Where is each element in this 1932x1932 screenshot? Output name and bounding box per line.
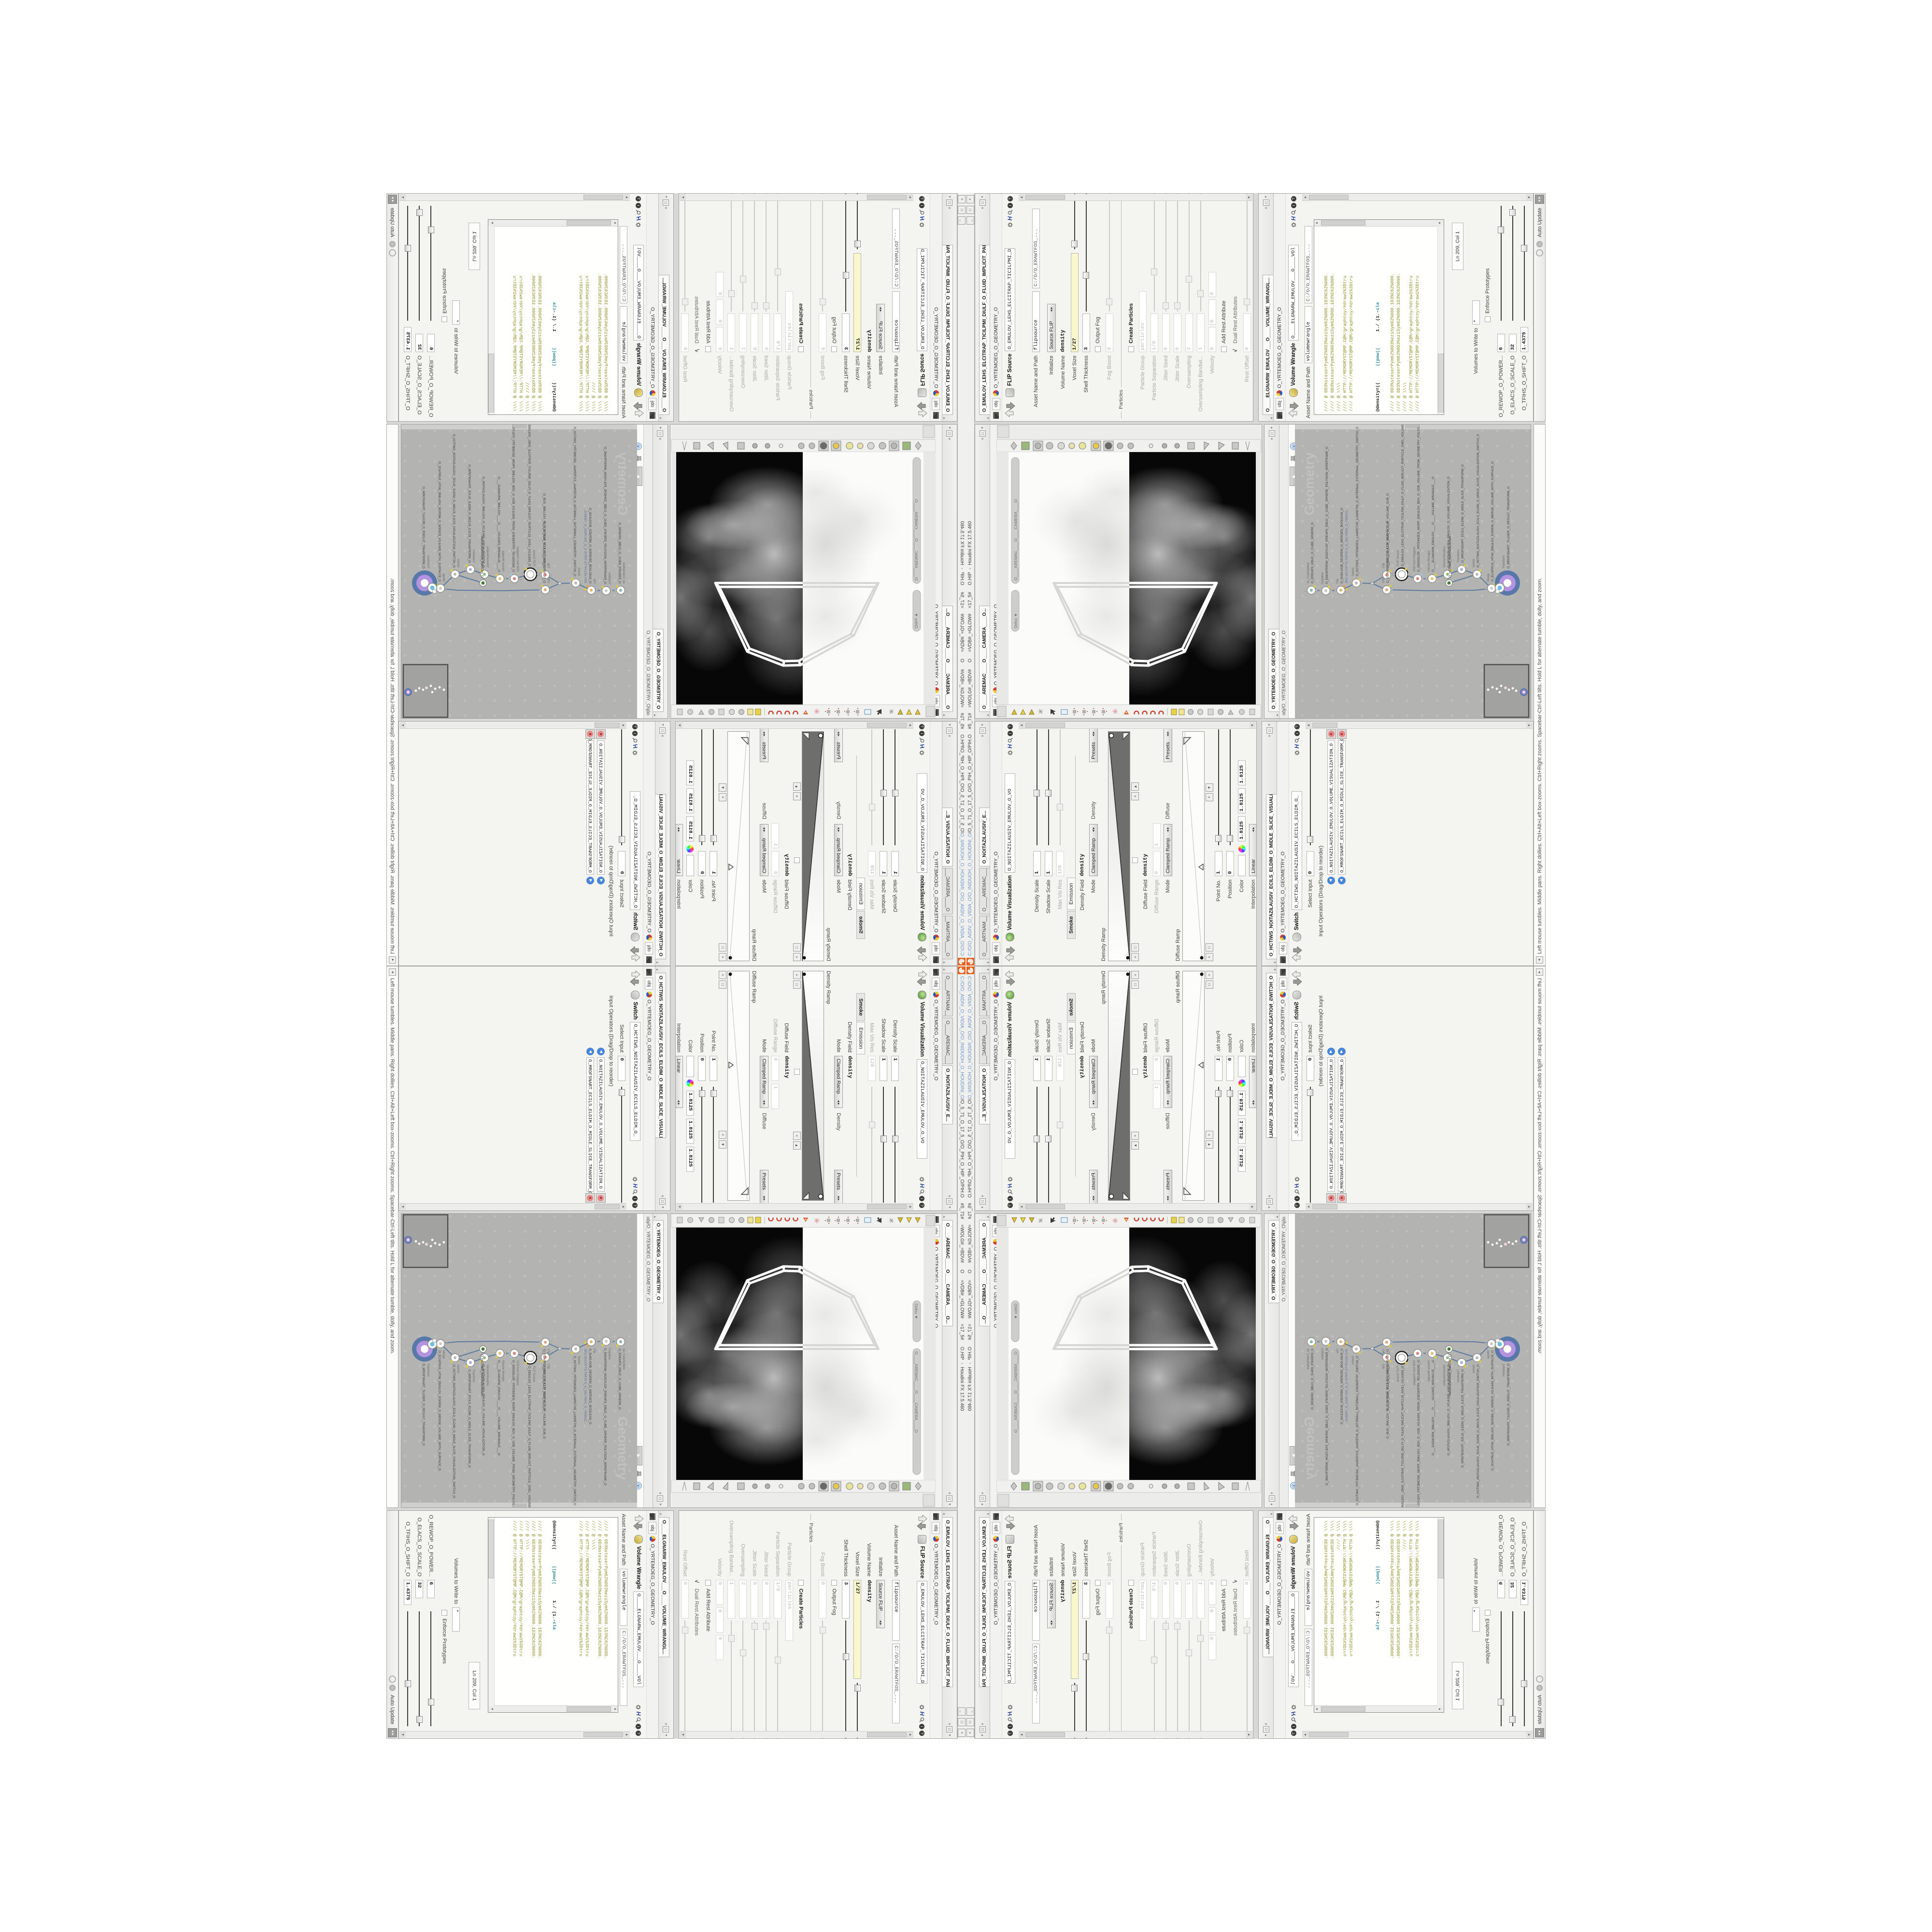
svg-text:VDB from Polygons: VDB from Polygons <box>1413 1360 1416 1385</box>
svg-text:Transform: Transform <box>472 1369 475 1382</box>
svg-text:Transform: Transform <box>426 1364 429 1377</box>
svg-text:JBO.VD3.PETS.TRFOLS_O_5SLVNDS_: JBO.VD3.PETS.TRFOLS_O_5SLVNDS_O_GEMUS... <box>1345 1349 1349 1424</box>
svg-text:O_HCTIWS_YRTEMOEG_LANRETXE_LAN: O_HCTIWS_YRTEMOEG_LANRETXE_LANRETNI_O_IN… <box>573 1356 576 1506</box>
svg-text:PolyWire: PolyWire <box>1321 572 1324 584</box>
svg-text:Merge: Merge <box>442 573 445 582</box>
svg-text:O_HCTIWS_YRTEMOEG_LANRETXE_LAN: O_HCTIWS_YRTEMOEG_LANRETXE_LANRETNI_O_IN… <box>573 426 576 576</box>
svg-text:Clip: Clip <box>547 1364 550 1369</box>
svg-text:O_ECAFRUS_HTIW_EMULOV_EGREM_O_: O_ECAFRUS_HTIW_EMULOV_EGREM_O_MERGE_VOLU… <box>438 1350 441 1471</box>
svg-text:O____ELGNARW_EMULOV____O____VO: O____ELGNARW_EMULOV____O____VOLUME_WRANG… <box>497 1360 500 1455</box>
svg-text:JBO.VD3.PETS.TRFOLS_O_5SLVNDS_: JBO.VD3.PETS.TRFOLS_O_5SLVNDS_O_GEMUS... <box>583 1349 587 1424</box>
svg-text:ae_CubeSphere: ae_CubeSphere <box>622 562 625 583</box>
svg-text:VolumeVisualiza: VolumeVisualiza <box>486 1364 489 1386</box>
svg-text:Merge: Merge <box>1487 573 1490 582</box>
svg-text:File: File <box>1336 579 1339 583</box>
svg-text:O_NAELOOB_DEGREM_O_MERGED_BOOL: O_NAELOOB_DEGREM_O_MERGED_BOOLEAN_O <box>1340 508 1344 583</box>
svg-text:Volume Wrangle: Volume Wrangle <box>501 550 504 572</box>
svg-text:File: File <box>593 1349 596 1353</box>
svg-text:ae_CubeSphere: ae_CubeSphere <box>1307 1349 1310 1370</box>
svg-text:Switch: Switch <box>1473 1364 1476 1373</box>
svg-text:VolumeVisualiza: VolumeVisualiza <box>1443 1364 1446 1386</box>
svg-text:FLIP Source: FLIP Source <box>1397 1366 1400 1382</box>
svg-text:O_NAELOOB_DEGREM_O_MERGED_BOOL: O_NAELOOB_DEGREM_O_MERGED_BOOLEAN_O <box>1340 1349 1344 1424</box>
svg-text:Switch: Switch <box>1352 1356 1355 1364</box>
svg-text:O_EMULOV_LEHS_ELCITRAP_TICILPM: O_EMULOV_LEHS_ELCITRAP_TICILPMI_DIULF_O_… <box>1401 1366 1405 1508</box>
svg-text:O_EREHPS_EBUC_O_CUBE_SPHERE_O: O_EREHPS_EBUC_O_CUBE_SPHERE_O <box>618 1349 621 1409</box>
svg-text:Clip: Clip <box>547 578 550 583</box>
svg-text:Transform: Transform <box>426 555 429 568</box>
svg-text:O_EMARFERIW_NOGYLOP_EREHPS_EBU: O_EMARFERIW_NOGYLOP_EREHPS_EBUC_O_CUBE_S… <box>603 447 607 584</box>
svg-text:VDB from Polygons: VDB from Polygons <box>1413 547 1416 572</box>
svg-text:O_MROFSNART_ECILS_ELDIM_O_MIDL: O_MROFSNART_ECILS_ELDIM_O_MIDLE_SLICE_TR… <box>1461 464 1464 563</box>
svg-text:Geometry: Geometry <box>615 1417 630 1480</box>
svg-text:Geometry: Geometry <box>615 452 630 515</box>
svg-text:O_HCTIWS_NOITAZILAUSIV_ECILS_E: O_HCTIWS_NOITAZILAUSIV_ECILS_ELDIM_O_MID… <box>452 434 455 568</box>
svg-text:O_EMARFERIW_NOGYLOP_EREHPS_EBU: O_EMARFERIW_NOGYLOP_EREHPS_EBUC_O_CUBE_S… <box>1325 1348 1329 1485</box>
svg-text:O_EREHPS_EBUC_O_CUBE_SPHERE_O: O_EREHPS_EBUC_O_CUBE_SPHERE_O <box>1311 1349 1314 1409</box>
svg-text:O_HCTIWS_YRTEMOEG_LANRETXE_LAN: O_HCTIWS_YRTEMOEG_LANRETXE_LANRETNI_O_IN… <box>1356 1356 1359 1506</box>
svg-text:VolumeVisualiza: VolumeVisualiza <box>1443 546 1446 568</box>
svg-text:VolumeVisualiza: VolumeVisualiza <box>486 546 489 568</box>
svg-text:O____AREMAC____O____CAMERA____: O____AREMAC____O____CAMERA____O <box>914 499 919 581</box>
svg-text:O_EMARFERIW_NOGYLOP_EREHPS_EBU: O_EMARFERIW_NOGYLOP_EREHPS_EBUC_O_CUBE_S… <box>1325 447 1329 584</box>
svg-text:O_HCTIWS_NOITAZILAUSIV...: O_HCTIWS_NOITAZILAUSIV... <box>480 1354 483 1398</box>
svg-text:O_MROFSNART_TLUSER_O_RESULT_TR: O_MROFSNART_TLUSER_O_RESULT_TRANSFORM_O <box>422 1364 425 1446</box>
svg-text:FLIP Source: FLIP Source <box>1397 550 1400 566</box>
svg-text:Ortho ▼: Ortho ▼ <box>914 613 919 628</box>
svg-text:Clip: Clip <box>1382 1364 1385 1369</box>
svg-text:Clip: Clip <box>547 563 550 568</box>
svg-text:O_EREHPS_EBUC_O_CUBE_SPHERE_O: O_EREHPS_EBUC_O_CUBE_SPHERE_O <box>1311 523 1314 583</box>
svg-text:Switch: Switch <box>1473 559 1476 568</box>
svg-text:O_MROFSNART_ECILS_ELDIM_O_MIDL: O_MROFSNART_ECILS_ELDIM_O_MIDLE_SLICE_TR… <box>468 1369 471 1468</box>
svg-text:O_HCTIWS_NOITAZILAUSIV_ECILS_E: O_HCTIWS_NOITAZILAUSIV_ECILS_ELDIM_O_MID… <box>1477 1364 1480 1498</box>
svg-text:O_EMARFERIW_NOGYLOP_EREHPS_EBU: O_EMARFERIW_NOGYLOP_EREHPS_EBUC_O_CUBE_S… <box>603 1348 607 1485</box>
svg-text:Volume Wrangle: Volume Wrangle <box>501 1360 504 1382</box>
svg-text:O____AREMAC____O____CAMERA____: O____AREMAC____O____CAMERA____O <box>914 1351 919 1433</box>
svg-text:Merge: Merge <box>442 1350 445 1359</box>
svg-text:PolyWire: PolyWire <box>1321 1348 1324 1360</box>
svg-text:Ortho ▼: Ortho ▼ <box>914 1304 919 1319</box>
svg-text:O_EMULOV_LEHS_ELCITRAP_TICILPM: O_EMULOV_LEHS_ELCITRAP_TICILPMI_DIULF_O_… <box>1401 424 1405 566</box>
svg-text:Clip: Clip <box>547 1349 550 1354</box>
svg-text:File: File <box>1336 1349 1339 1353</box>
svg-text:Clip: Clip <box>1382 563 1385 568</box>
svg-text:O_ECAFRUS_PILC_O_CLIP_SURFACE_: O_ECAFRUS_PILC_O_CLIP_SURFACE_O <box>542 521 546 583</box>
svg-text:O_HCTIWS_NOITAZILAUSIV...: O_HCTIWS_NOITAZILAUSIV... <box>480 534 483 578</box>
svg-text:Transform: Transform <box>1457 1369 1460 1382</box>
svg-text:Ortho ▼: Ortho ▼ <box>1013 1304 1018 1319</box>
svg-text:O_MROFSNART_TLUSER_O_RESULT_TR: O_MROFSNART_TLUSER_O_RESULT_TRANSFORM_O <box>1507 486 1510 568</box>
svg-text:O_MROFSNART_TLUSER_O_RESULT_TR: O_MROFSNART_TLUSER_O_RESULT_TRANSFORM_O <box>422 486 425 568</box>
svg-text:O_NAELOOB_DEGREM_O_MERGED_BOOL: O_NAELOOB_DEGREM_O_MERGED_BOOLEAN_O <box>588 508 592 583</box>
svg-text:O____ELGNARW_EMULOV____O____VO: O____ELGNARW_EMULOV____O____VOLUME_WRANG… <box>1432 477 1435 572</box>
svg-text:O_ECAFRUS_PILC_O_CLIP_SURFACE_: O_ECAFRUS_PILC_O_CLIP_SURFACE_O <box>1386 521 1390 583</box>
svg-text:O_HCTIWS_NOITAZILAUSIV_ECILS_E: O_HCTIWS_NOITAZILAUSIV_ECILS_ELDIM_O_MID… <box>452 1364 455 1498</box>
svg-text:O____AREMAC____O____CAMERA____: O____AREMAC____O____CAMERA____O <box>1013 499 1018 581</box>
svg-text:O_HCTIWS_YRTEMOEG_LANRETXE_LAN: O_HCTIWS_YRTEMOEG_LANRETXE_LANRETNI_O_IN… <box>1356 426 1359 576</box>
svg-text:O_MROFSNART_ECILS_ELDIM_O_MIDL: O_MROFSNART_ECILS_ELDIM_O_MIDLE_SLICE_TR… <box>1461 1369 1464 1468</box>
svg-text:ae_CubeSphere: ae_CubeSphere <box>622 1349 625 1370</box>
svg-text:Transform: Transform <box>1503 1364 1506 1377</box>
svg-text:O_EREHPS_EBUC_O_CUBE_SPHERE_O: O_EREHPS_EBUC_O_CUBE_SPHERE_O <box>618 523 621 583</box>
svg-text:O_ECAFRUS_PILC_O_CLIP_SURFACE_: O_ECAFRUS_PILC_O_CLIP_SURFACE_O <box>1386 1349 1390 1411</box>
svg-text:Transform: Transform <box>1503 555 1506 568</box>
svg-text:Geometry: Geometry <box>1302 1417 1317 1480</box>
svg-text:JBO.VD3.PETS.TRFOLS_O_5SLVNDS_: JBO.VD3.PETS.TRFOLS_O_5SLVNDS_O_GEMUS... <box>583 508 587 583</box>
svg-text:O_EMULOV_LEHS_ELCITRAP_TICILPM: O_EMULOV_LEHS_ELCITRAP_TICILPMI_DIULF_O_… <box>527 1366 531 1508</box>
svg-text:VDB from Polygons: VDB from Polygons <box>516 1360 519 1385</box>
svg-text:Transform: Transform <box>472 550 475 563</box>
svg-text:O_HCTIWS_NOITAZILAUSIV...: O_HCTIWS_NOITAZILAUSIV... <box>1449 534 1452 578</box>
svg-text:O_SNOGILOP_YRTEMOEG_MORF_EMULO: O_SNOGILOP_YRTEMOEG_MORF_EMULOV_BDV_O_VD… <box>1417 1360 1421 1507</box>
svg-text:O_ECAFRUS_HTIW_EMULOV_EGREM_O_: O_ECAFRUS_HTIW_EMULOV_EGREM_O_MERGE_VOLU… <box>1491 461 1494 582</box>
svg-text:Clip: Clip <box>1382 578 1385 583</box>
svg-text:Switch: Switch <box>456 1364 459 1373</box>
svg-text:O_EMULOV_LEHS_ELCITRAP_TICILPM: O_EMULOV_LEHS_ELCITRAP_TICILPMI_DIULF_O_… <box>527 424 531 566</box>
svg-text:Volume Wrangle: Volume Wrangle <box>1428 550 1431 572</box>
svg-text:Switch: Switch <box>577 568 580 576</box>
svg-text:VDB from Polygons: VDB from Polygons <box>516 547 519 572</box>
svg-text:O_HCTIWS_NOITAZILAUSIV_ECILS_E: O_HCTIWS_NOITAZILAUSIV_ECILS_ELDIM_O_MID… <box>1477 434 1480 568</box>
svg-text:O_SNOGILOP_YRTEMOEG_MORF_EMULO: O_SNOGILOP_YRTEMOEG_MORF_EMULOV_BDV_O_VD… <box>511 1360 515 1507</box>
svg-text:O_HCTIWS_NOITAZILAUSIV...: O_HCTIWS_NOITAZILAUSIV... <box>1449 1354 1452 1398</box>
svg-text:O_MROFSNART_ECILS_ELDIM_O_MIDL: O_MROFSNART_ECILS_ELDIM_O_MIDLE_SLICE_TR… <box>468 464 471 563</box>
svg-text:O_NAELOOB_DEGREM_O_MERGED_BOOL: O_NAELOOB_DEGREM_O_MERGED_BOOLEAN_O <box>588 1349 592 1424</box>
svg-text:Clip: Clip <box>1382 1349 1385 1354</box>
svg-text:Switch: Switch <box>577 1356 580 1364</box>
svg-text:Geometry: Geometry <box>1302 452 1317 515</box>
svg-text:FLIP Source: FLIP Source <box>532 1366 535 1382</box>
svg-text:O____ELGNARW_EMULOV____O____VO: O____ELGNARW_EMULOV____O____VOLUME_WRANG… <box>497 477 500 572</box>
svg-text:O_ECAFRUS_HTIW_EMULOV_EGREM_O_: O_ECAFRUS_HTIW_EMULOV_EGREM_O_MERGE_VOLU… <box>438 461 441 582</box>
svg-text:O_SNOGILOP_YRTEMOEG_MORF_EMULO: O_SNOGILOP_YRTEMOEG_MORF_EMULOV_BDV_O_VD… <box>511 425 515 572</box>
svg-text:O_MROFSNART_TLUSER_O_RESULT_TR: O_MROFSNART_TLUSER_O_RESULT_TRANSFORM_O <box>1507 1364 1510 1446</box>
svg-text:Switch: Switch <box>1352 568 1355 576</box>
svg-text:Switch: Switch <box>456 559 459 568</box>
svg-text:O_ECAFRUS_HTIW_EMULOV_EGREM_O_: O_ECAFRUS_HTIW_EMULOV_EGREM_O_MERGE_VOLU… <box>1491 1350 1494 1471</box>
svg-text:O_SNOGILOP_YRTEMOEG_MORF_EMULO: O_SNOGILOP_YRTEMOEG_MORF_EMULOV_BDV_O_VD… <box>1417 425 1421 572</box>
svg-text:Volume Wrangle: Volume Wrangle <box>1428 1360 1431 1382</box>
svg-text:Merge: Merge <box>1487 1350 1490 1359</box>
svg-text:O____AREMAC____O____CAMERA____: O____AREMAC____O____CAMERA____O <box>1013 1351 1018 1433</box>
svg-text:PolyWire: PolyWire <box>608 1348 611 1360</box>
svg-text:Transform: Transform <box>1457 550 1460 563</box>
svg-text:O____ELGNARW_EMULOV____O____VO: O____ELGNARW_EMULOV____O____VOLUME_WRANG… <box>1432 1360 1435 1455</box>
svg-text:PolyWire: PolyWire <box>608 572 611 584</box>
svg-text:ae_CubeSphere: ae_CubeSphere <box>1307 562 1310 583</box>
svg-text:FLIP Source: FLIP Source <box>532 550 535 566</box>
svg-text:O_ECAFRUS_PILC_O_CLIP_SURFACE_: O_ECAFRUS_PILC_O_CLIP_SURFACE_O <box>542 1349 546 1411</box>
svg-text:JBO.VD3.PETS.TRFOLS_O_5SLVNDS_: JBO.VD3.PETS.TRFOLS_O_5SLVNDS_O_GEMUS... <box>1345 508 1349 583</box>
svg-text:Ortho ▼: Ortho ▼ <box>1013 613 1018 628</box>
svg-text:File: File <box>593 579 596 583</box>
